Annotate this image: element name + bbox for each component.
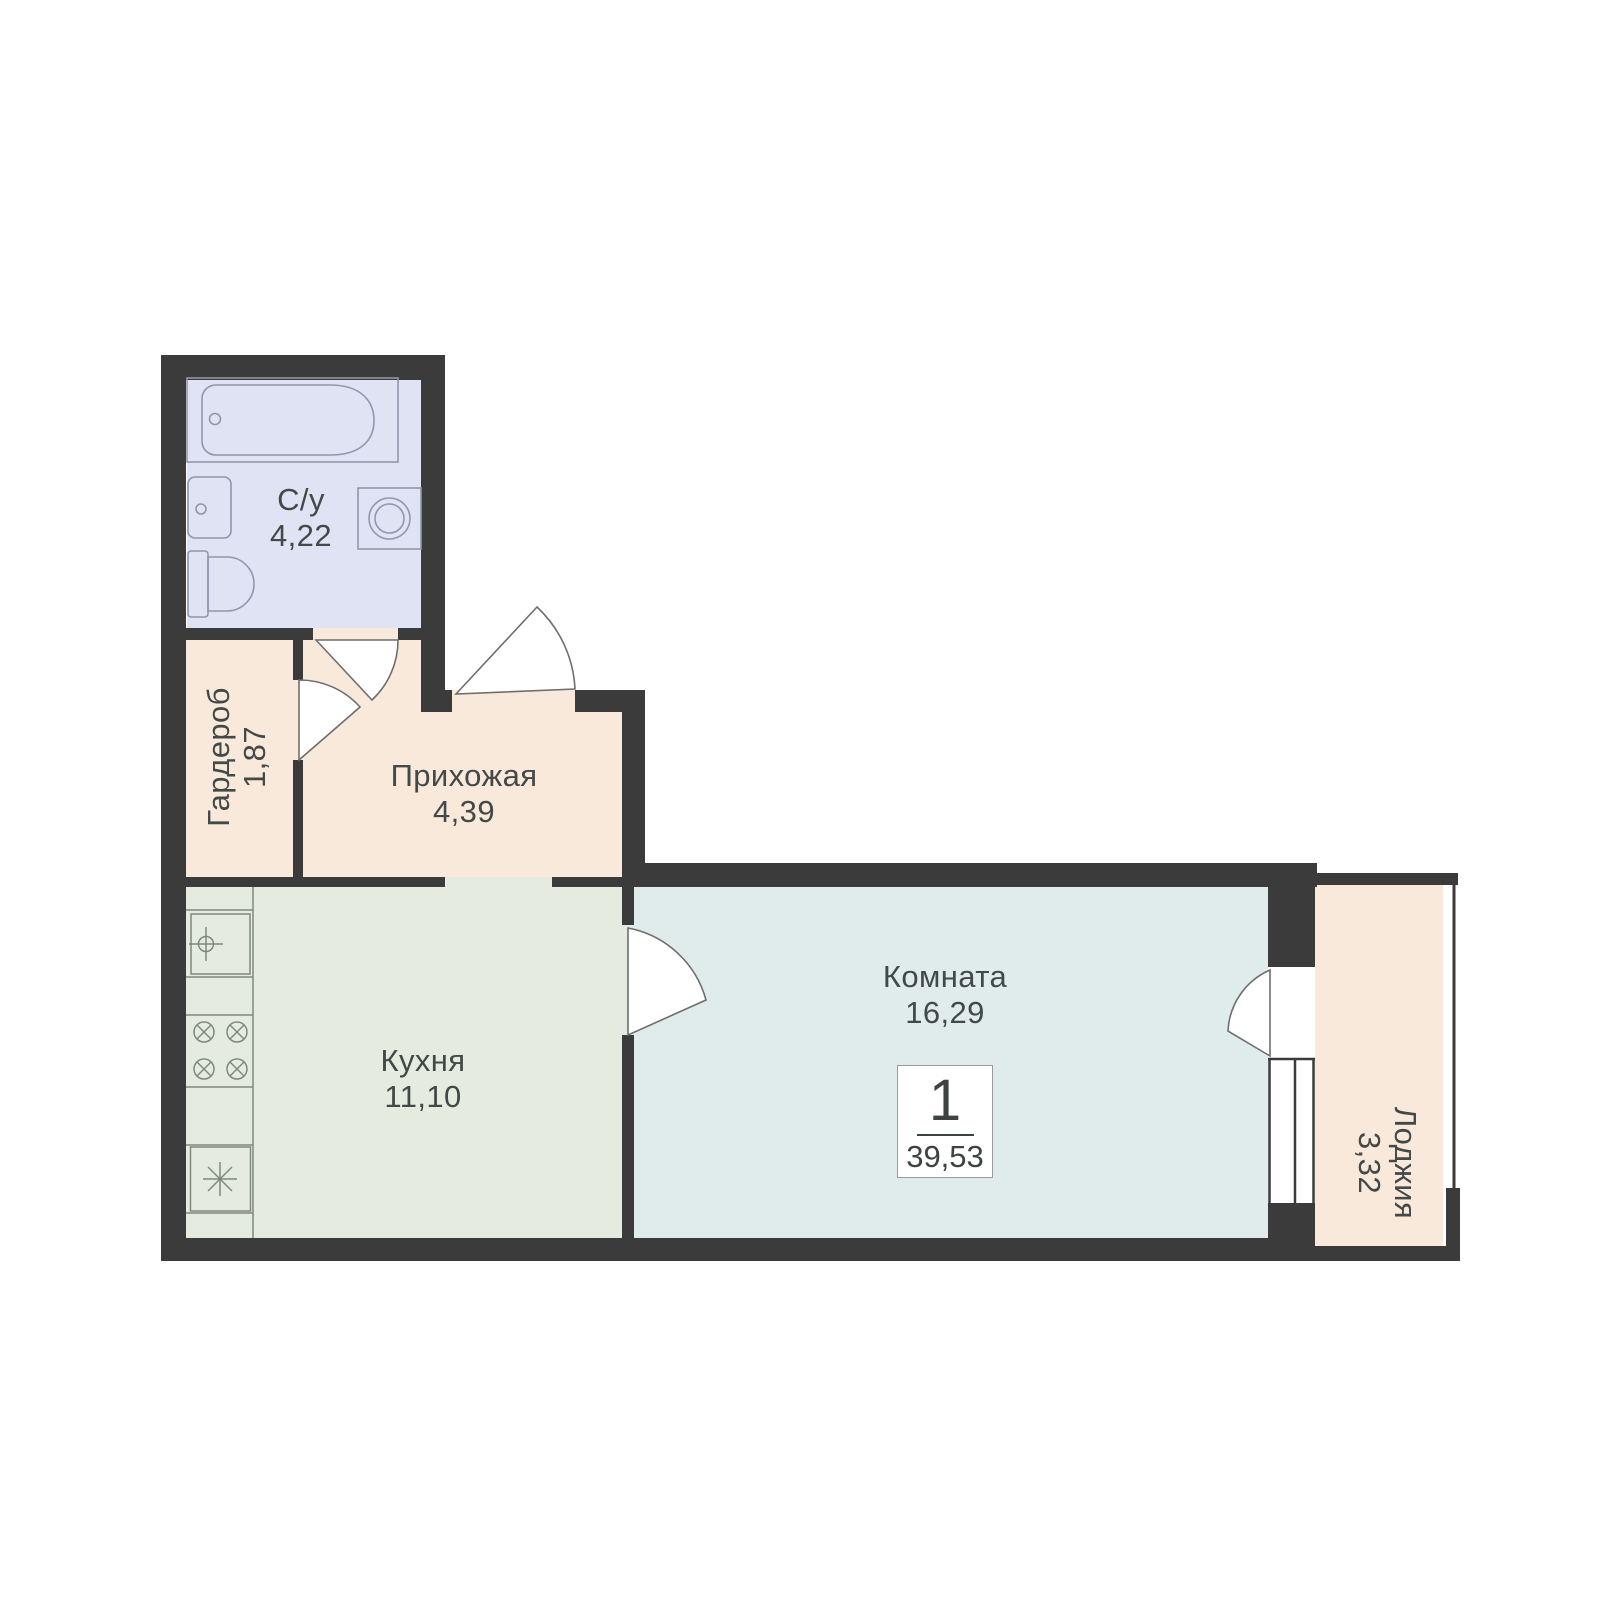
apartment-type-badge: 1 39,53 xyxy=(897,1065,993,1178)
wall-segment xyxy=(622,1035,634,1240)
wall-segment xyxy=(186,877,445,887)
wall-segment xyxy=(622,863,1317,887)
wall-segment xyxy=(161,355,186,1261)
wall-segment xyxy=(421,355,445,712)
wall-segment xyxy=(161,1238,1270,1261)
wall-segment xyxy=(622,690,645,887)
room-area: 1,87 xyxy=(237,687,273,827)
wall-segment xyxy=(1315,1246,1460,1261)
room-name: С/у xyxy=(270,482,332,518)
room-label-living-room: Комната 16,29 xyxy=(883,959,1007,1031)
room-name: Кухня xyxy=(381,1043,466,1079)
room-name: Лоджия xyxy=(1387,1107,1423,1219)
room-label-bathroom: С/у 4,22 xyxy=(270,482,332,554)
wall-segment xyxy=(293,760,303,887)
door-arc-entrance xyxy=(456,607,575,694)
room-label-kitchen: Кухня 11,10 xyxy=(381,1043,466,1115)
wall-segment xyxy=(421,690,452,712)
room-label-wardrobe: Гардероб 1,87 xyxy=(201,687,273,827)
wall-segment xyxy=(186,628,313,640)
wall-segment xyxy=(552,877,622,887)
room-name: Комната xyxy=(883,959,1007,995)
room-fill-living-room xyxy=(628,863,1268,1240)
wall-segment xyxy=(1268,1203,1315,1261)
room-name: Прихожая xyxy=(391,758,538,794)
room-area: 11,10 xyxy=(381,1079,466,1115)
wall-segment xyxy=(293,640,303,680)
total-area: 39,53 xyxy=(906,1141,984,1172)
room-name: Гардероб xyxy=(201,687,237,827)
window-living-loggia xyxy=(1268,1058,1315,1203)
wall-segment xyxy=(398,628,421,640)
room-label-loggia: Лоджия 3,32 xyxy=(1351,1107,1423,1219)
badge-divider xyxy=(917,1134,974,1136)
wall-segment xyxy=(1446,1188,1460,1261)
wall-segment xyxy=(622,887,634,925)
room-area: 4,39 xyxy=(391,794,538,830)
room-area: 4,22 xyxy=(270,518,332,554)
rooms-count: 1 xyxy=(929,1072,961,1130)
room-label-hallway: Прихожая 4,39 xyxy=(391,758,538,830)
room-fills xyxy=(186,380,1443,1248)
wall-segment xyxy=(1315,873,1458,885)
wall-segment xyxy=(1268,887,1315,967)
wall-segment xyxy=(161,355,445,380)
room-area: 3,32 xyxy=(1351,1107,1387,1219)
room-area: 16,29 xyxy=(883,995,1007,1031)
floor-plan-canvas: С/у 4,22 Гардероб 1,87 Прихожая 4,39 Кух… xyxy=(0,0,1620,1620)
